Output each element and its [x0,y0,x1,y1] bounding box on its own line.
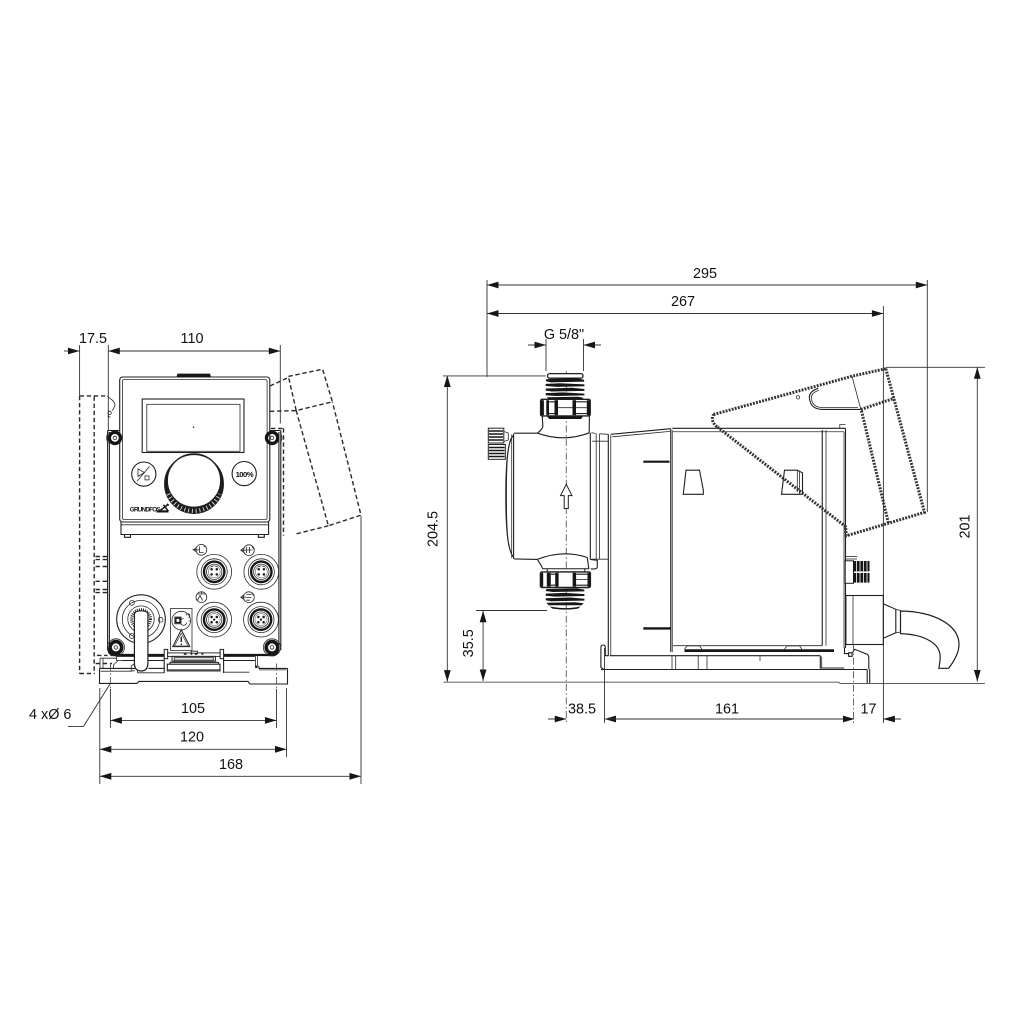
svg-text:295: 295 [693,266,717,282]
svg-text:168: 168 [219,757,243,773]
svg-text:161: 161 [715,702,739,718]
svg-text:267: 267 [671,294,695,310]
svg-text:4 xØ 6: 4 xØ 6 [29,707,71,723]
svg-text:17: 17 [860,702,876,718]
svg-text:35.5: 35.5 [461,629,477,657]
svg-text:G 5/8": G 5/8" [544,327,584,343]
svg-text:204.5: 204.5 [426,511,442,547]
svg-text:17.5: 17.5 [79,331,107,347]
svg-text:105: 105 [181,701,205,717]
svg-text:120: 120 [180,730,204,746]
svg-text:110: 110 [181,331,204,347]
svg-text:100%: 100% [236,470,254,479]
svg-text:38.5: 38.5 [568,702,596,718]
svg-text:GRUNDFOS: GRUNDFOS [130,507,161,514]
svg-text:201: 201 [958,514,974,538]
